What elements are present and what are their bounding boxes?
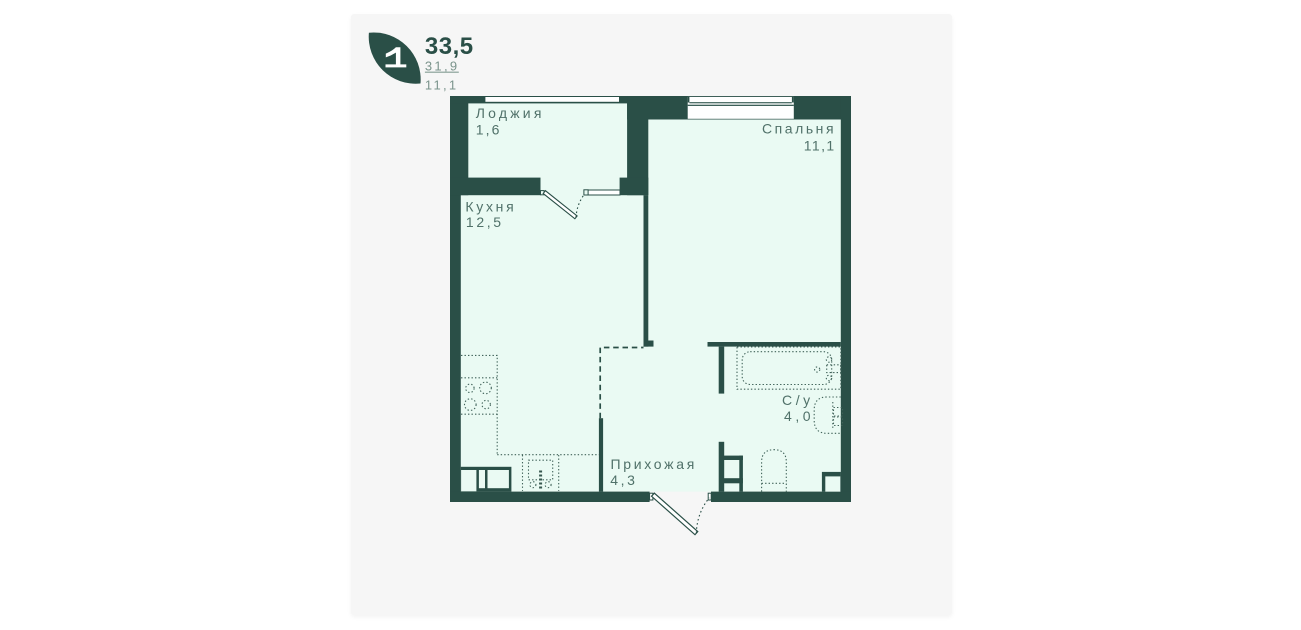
svg-text:11,1: 11,1	[804, 138, 836, 154]
svg-text:4,3: 4,3	[610, 472, 637, 488]
svg-text:33,5: 33,5	[425, 33, 474, 60]
svg-text:4,0: 4,0	[784, 408, 814, 424]
svg-text:11,1: 11,1	[425, 78, 459, 93]
svg-text:Кухня: Кухня	[465, 199, 516, 215]
svg-text:Спальня: Спальня	[762, 121, 836, 137]
svg-text:Прихожая: Прихожая	[611, 456, 697, 472]
svg-text:Лоджия: Лоджия	[476, 105, 545, 121]
svg-text:12,5: 12,5	[466, 214, 504, 230]
svg-text:С/у: С/у	[782, 392, 814, 408]
svg-text:1,6: 1,6	[476, 121, 502, 137]
svg-text:31,9: 31,9	[425, 58, 460, 73]
